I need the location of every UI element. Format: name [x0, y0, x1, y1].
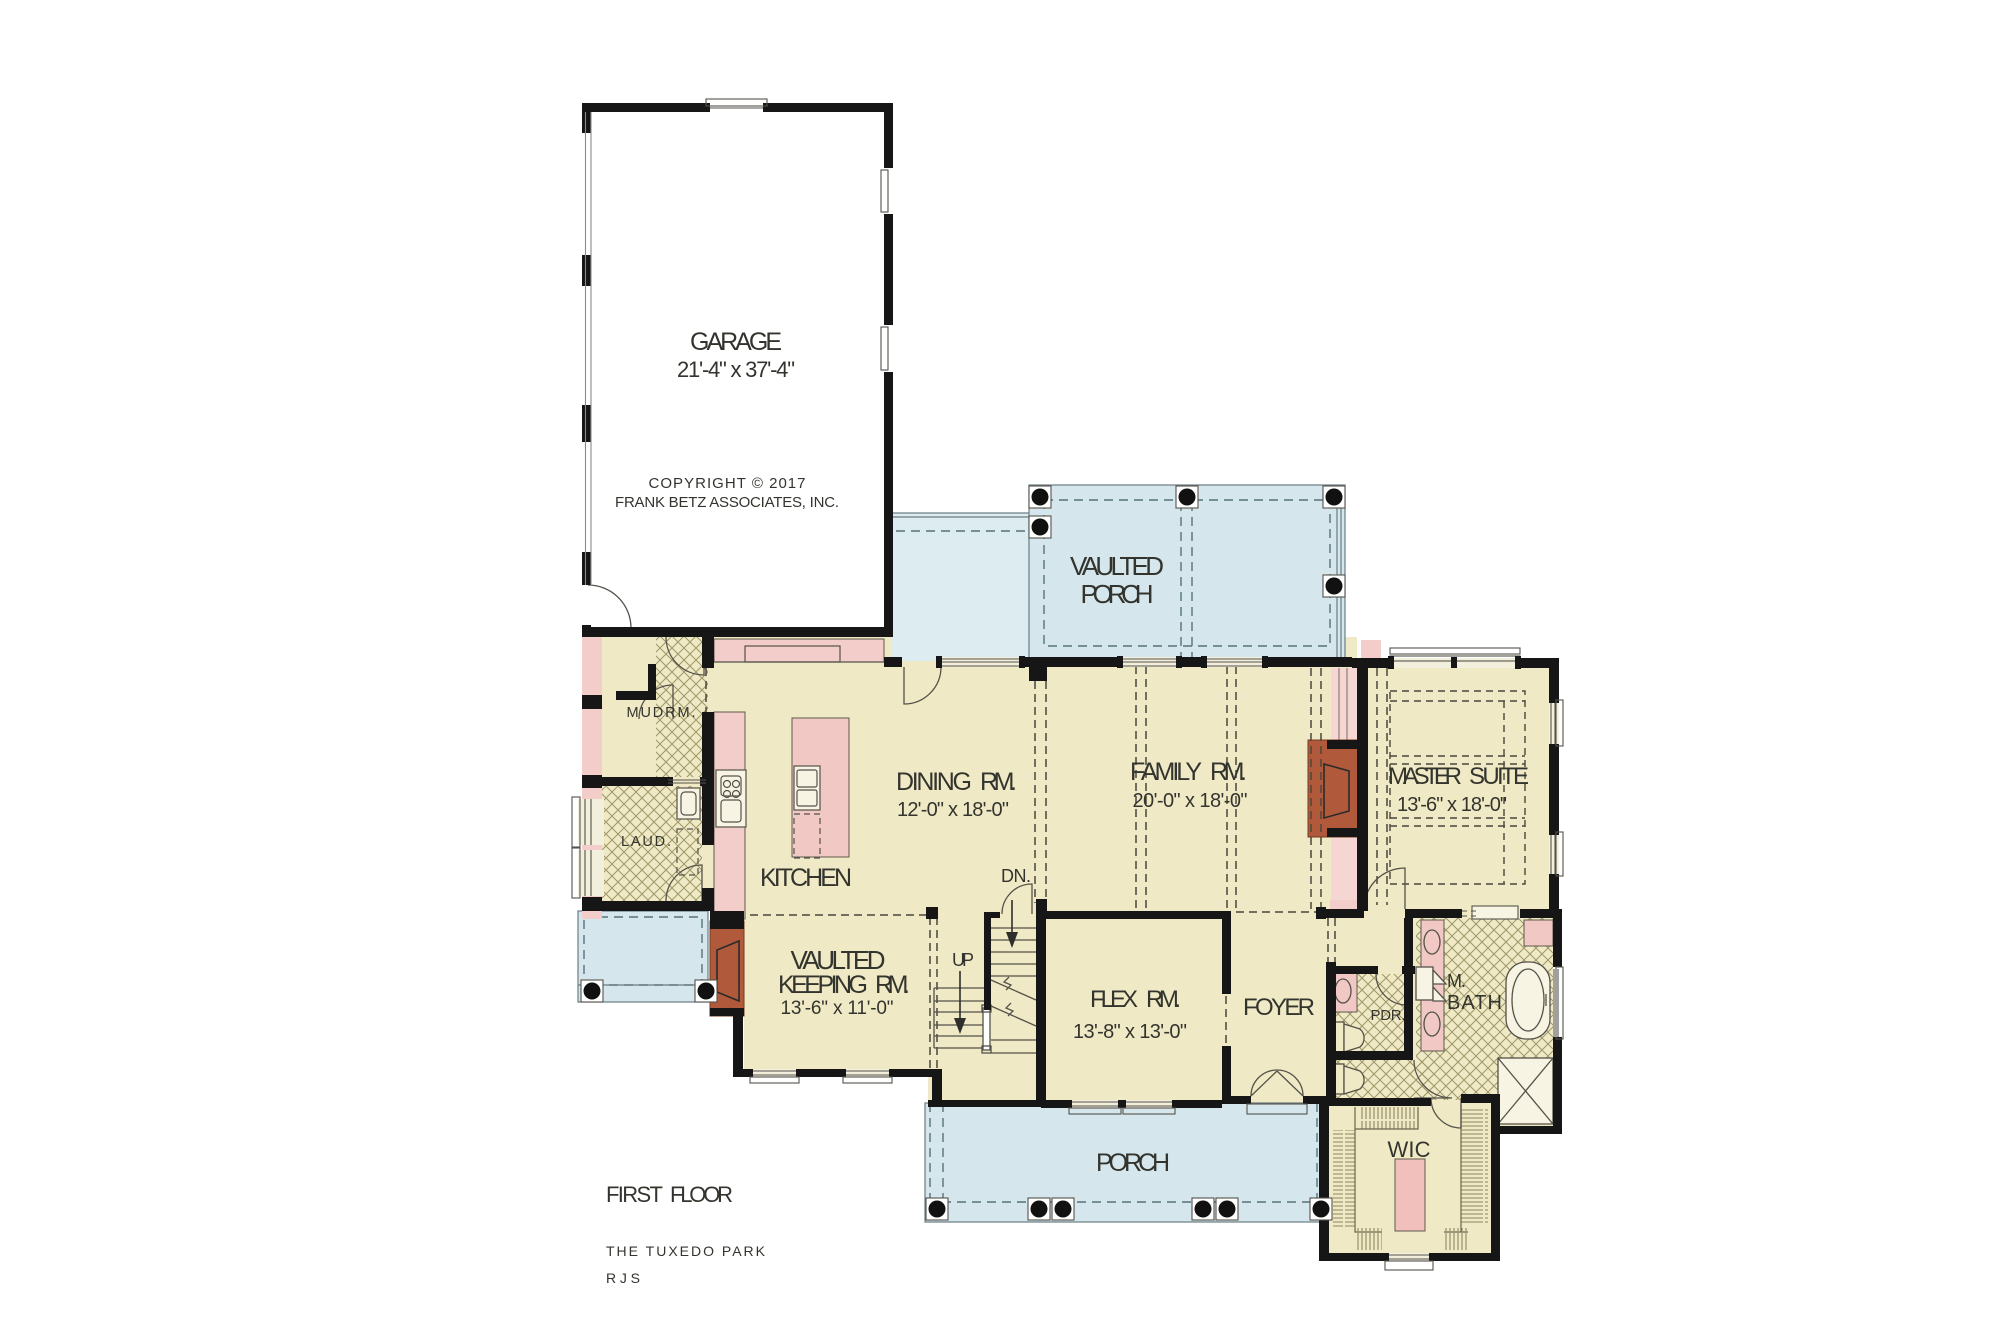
svg-text:FLEX: FLEX [1090, 986, 1138, 1013]
svg-text:13'-6" x 18'-0": 13'-6" x 18'-0" [1397, 794, 1507, 816]
svg-text:KITCHEN: KITCHEN [760, 864, 852, 892]
svg-text:SUITE: SUITE [1469, 763, 1529, 790]
svg-text:VAULTED: VAULTED [1070, 551, 1164, 581]
svg-text:13'-8" x 13'-0": 13'-8" x 13'-0" [1073, 1021, 1187, 1043]
svg-text:12'-0" x 18'-0": 12'-0" x 18'-0" [897, 799, 1009, 821]
svg-text:20'-0" x 18'-0": 20'-0" x 18'-0" [1133, 790, 1248, 812]
svg-text:KEEPING: KEEPING [778, 971, 868, 999]
svg-text:LAUD.: LAUD. [621, 834, 671, 850]
svg-text:PORCH: PORCH [1081, 579, 1154, 609]
svg-text:MUDRM.: MUDRM. [627, 705, 696, 721]
svg-text:RJS: RJS [606, 1270, 640, 1286]
svg-text:RM.: RM. [1210, 758, 1247, 786]
svg-text:21'-4" x 37'-4": 21'-4" x 37'-4" [677, 357, 795, 382]
svg-text:GARAGE: GARAGE [690, 328, 782, 356]
svg-text:RM.: RM. [980, 768, 1017, 796]
svg-text:WIC: WIC [1388, 1137, 1431, 1162]
svg-text:FOYER: FOYER [1243, 994, 1315, 1021]
svg-text:M.: M. [1447, 971, 1466, 991]
svg-text:BATH: BATH [1447, 992, 1502, 1014]
svg-text:FAMILY: FAMILY [1130, 758, 1202, 786]
svg-text:RM.: RM. [1146, 986, 1181, 1013]
svg-text:PDR.: PDR. [1371, 1007, 1406, 1024]
svg-text:RM.: RM. [875, 971, 910, 999]
svg-text:MASTER: MASTER [1388, 763, 1462, 790]
svg-text:FIRST: FIRST [606, 1182, 663, 1207]
svg-text:PORCH: PORCH [1096, 1149, 1170, 1177]
svg-text:13'-6" x 11'-0": 13'-6" x 11'-0" [781, 998, 894, 1019]
svg-text:DINING: DINING [896, 768, 972, 796]
svg-text:UP: UP [952, 950, 974, 970]
svg-text:DN.: DN. [1001, 866, 1031, 886]
svg-text:FRANK BETZ ASSOCIATES, INC.: FRANK BETZ ASSOCIATES, INC. [615, 494, 839, 511]
svg-text:FLOOR: FLOOR [670, 1182, 733, 1207]
